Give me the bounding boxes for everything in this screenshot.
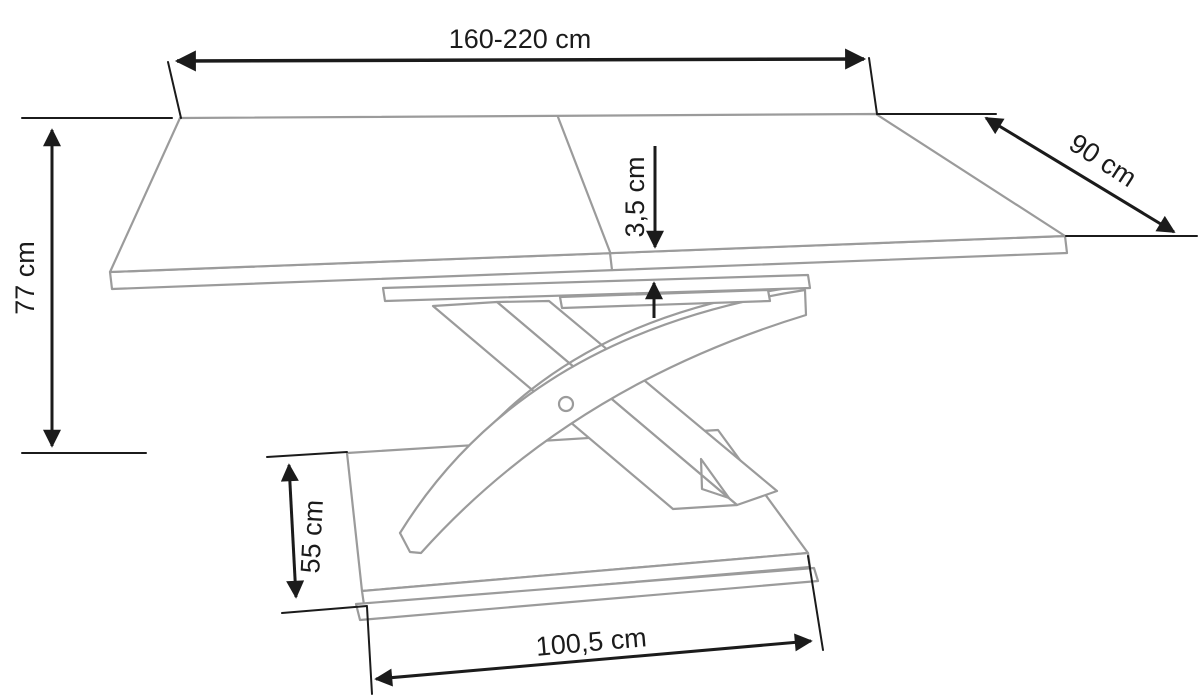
pivot-bolt-icon xyxy=(559,397,573,411)
thickness-label: 3,5 cm xyxy=(620,156,650,237)
table-technical-drawing: 160-220 cm 90 cm 77 cm 3,5 cm 55 cm 100,… xyxy=(0,0,1200,697)
base-height-tick-bottom xyxy=(282,606,367,613)
length-arrow xyxy=(177,59,864,61)
length-extension-left xyxy=(168,62,181,118)
height-label: 77 cm xyxy=(10,241,40,315)
tabletop xyxy=(110,114,1067,289)
length-label: 160-220 cm xyxy=(449,24,592,54)
depth-label: 90 cm xyxy=(1064,128,1142,193)
technical-drawing-canvas: 160-220 cm 90 cm 77 cm 3,5 cm 55 cm 100,… xyxy=(0,0,1200,697)
table-outline xyxy=(110,114,1067,620)
base-height-arrow xyxy=(289,465,296,597)
length-extension-right xyxy=(869,58,877,114)
dimension-length: 160-220 cm xyxy=(168,24,877,118)
base-height-tick-top xyxy=(267,452,347,457)
base-height-label: 55 cm xyxy=(295,499,329,574)
